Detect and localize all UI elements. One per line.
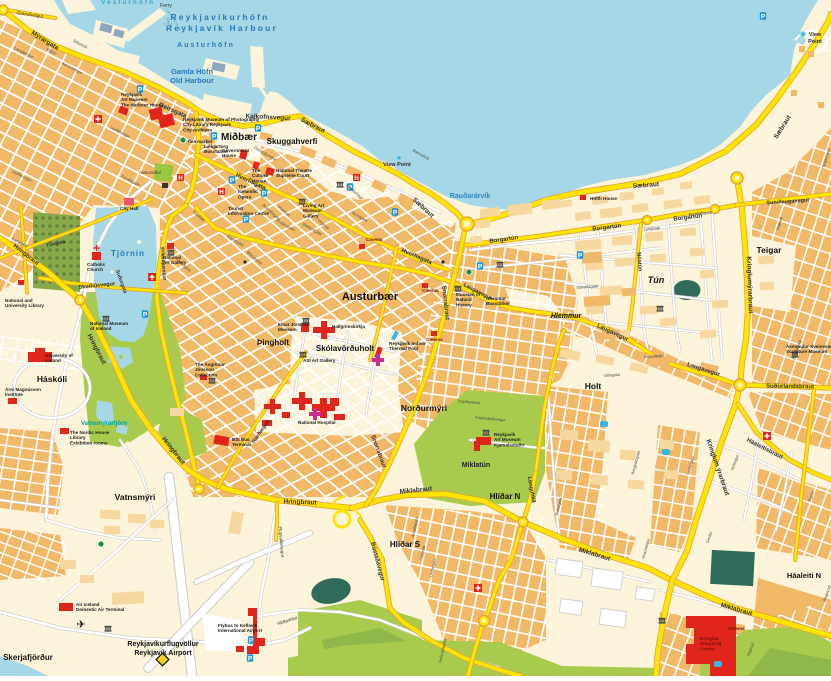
svg-text:Centre: Centre bbox=[700, 646, 715, 651]
svg-text:View Point: View Point bbox=[383, 162, 411, 168]
svg-text:International Airport: International Airport bbox=[218, 628, 262, 633]
svg-text:P: P bbox=[212, 134, 217, 141]
svg-text:Thermal Pool: Thermal Pool bbox=[389, 346, 418, 351]
svg-text:Austurbær: Austurbær bbox=[342, 291, 399, 303]
svg-text:Höfði House: Höfði House bbox=[590, 195, 617, 201]
svg-text:P: P bbox=[249, 638, 254, 645]
svg-text:Cinema: Cinema bbox=[366, 237, 383, 242]
svg-text:Reykjavíkurflugvöllur: Reykjavíkurflugvöllur bbox=[127, 641, 198, 648]
svg-text:H: H bbox=[219, 190, 223, 196]
svg-text:Hlíðar S: Hlíðar S bbox=[390, 540, 421, 549]
svg-text:P: P bbox=[478, 264, 483, 271]
svg-text:Holt: Holt bbox=[585, 381, 602, 391]
svg-text:Tjörnin: Tjörnin bbox=[111, 249, 145, 258]
svg-text:Ásmundur Sveinsson: Ásmundur Sveinsson bbox=[786, 343, 831, 349]
svg-text:Austurvöllur: Austurvöllur bbox=[139, 170, 162, 175]
svg-text:Ferry: Ferry bbox=[160, 3, 172, 9]
svg-text:Vatnsmýri: Vatnsmýri bbox=[115, 492, 156, 502]
svg-text:Hlemmur: Hlemmur bbox=[551, 313, 583, 320]
svg-text:Information Centre: Information Centre bbox=[228, 211, 270, 216]
svg-text:P: P bbox=[244, 217, 249, 224]
svg-text:H: H bbox=[178, 176, 182, 182]
svg-text:Teigar: Teigar bbox=[757, 245, 783, 255]
svg-text:Skuggahverfi: Skuggahverfi bbox=[267, 137, 318, 146]
svg-text:Point: Point bbox=[808, 39, 822, 45]
svg-text:City Hall: City Hall bbox=[120, 206, 138, 211]
svg-text:of Iceland: of Iceland bbox=[90, 326, 112, 331]
svg-text:Domestic Air Terminal: Domestic Air Terminal bbox=[76, 607, 124, 612]
svg-text:Kjarvalsstaðir: Kjarvalsstaðir bbox=[494, 441, 525, 447]
svg-text:National Hospital: National Hospital bbox=[298, 420, 336, 425]
svg-text:Tún: Tún bbox=[648, 275, 665, 285]
svg-text:Suðurlandsbraut: Suðurlandsbraut bbox=[766, 383, 814, 391]
svg-text:Hringbraut: Hringbraut bbox=[283, 498, 317, 506]
svg-text:Rauðarárvík: Rauðarárvík bbox=[450, 192, 491, 200]
svg-text:House: House bbox=[252, 178, 266, 183]
svg-text:P: P bbox=[230, 178, 235, 185]
svg-text:Vesturhöfn: Vesturhöfn bbox=[101, 0, 155, 6]
svg-text:P: P bbox=[393, 210, 398, 217]
svg-text:Church: Church bbox=[87, 267, 103, 272]
svg-text:P: P bbox=[578, 253, 583, 260]
svg-text:University Library: University Library bbox=[5, 303, 45, 308]
svg-text:Hallgrímskirkja: Hallgrímskirkja bbox=[332, 324, 365, 329]
svg-text:Terminal: Terminal bbox=[232, 442, 251, 447]
svg-text:P: P bbox=[761, 14, 766, 21]
svg-text:BSÍ Bus: BSÍ Bus bbox=[232, 435, 250, 442]
svg-text:Cinema: Cinema bbox=[728, 626, 745, 631]
svg-text:Háaleiti N: Háaleiti N bbox=[787, 571, 821, 580]
svg-text:View: View bbox=[809, 32, 822, 38]
svg-text:P: P bbox=[248, 656, 253, 663]
svg-text:Þingholt: Þingholt bbox=[257, 338, 289, 347]
svg-text:Reykjavík Harbour: Reykjavík Harbour bbox=[166, 23, 278, 33]
svg-text:Collection: Collection bbox=[195, 372, 217, 377]
svg-text:The Ásgrímur: The Ásgrímur bbox=[195, 361, 225, 367]
svg-text:P: P bbox=[143, 312, 148, 319]
svg-text:Supreme Court: Supreme Court bbox=[276, 173, 310, 178]
svg-text:Miklatún: Miklatún bbox=[462, 462, 490, 469]
svg-text:ASÍ Art Gallery: ASÍ Art Gallery bbox=[303, 356, 336, 363]
svg-text:Gamla Höfn: Gamla Höfn bbox=[171, 67, 214, 76]
svg-text:Miðbær: Miðbær bbox=[221, 131, 257, 143]
svg-text:Old Harbour: Old Harbour bbox=[170, 76, 214, 85]
svg-text:Hlíðar N: Hlíðar N bbox=[490, 492, 521, 501]
svg-text:Reykjavíkurhöfn: Reykjavíkurhöfn bbox=[170, 12, 269, 22]
svg-text:House: House bbox=[222, 153, 236, 158]
svg-text:Cinema: Cinema bbox=[426, 337, 443, 342]
svg-text:Opera: Opera bbox=[238, 194, 252, 199]
svg-text:Iceland: Iceland bbox=[45, 358, 61, 363]
svg-text:Exhibition rooms: Exhibition rooms bbox=[70, 440, 108, 445]
svg-text:✺: ✺ bbox=[396, 155, 401, 162]
svg-text:History: History bbox=[456, 302, 472, 307]
svg-text:Museum: Museum bbox=[278, 327, 297, 332]
svg-text:Gallery: Gallery bbox=[303, 213, 319, 218]
svg-text:Árni Magnússon: Árni Magnússon bbox=[5, 386, 41, 392]
svg-text:⚓: ⚓ bbox=[163, 17, 173, 27]
svg-text:City Archives: City Archives bbox=[183, 127, 213, 132]
svg-text:Cinema: Cinema bbox=[422, 288, 439, 293]
svg-text:✈: ✈ bbox=[76, 619, 85, 631]
svg-text:Skólavörðuholt: Skólavörðuholt bbox=[316, 344, 375, 353]
svg-text:P: P bbox=[262, 191, 267, 198]
svg-text:Skerjafjörður: Skerjafjörður bbox=[3, 653, 53, 662]
svg-text:The Harbour House: The Harbour House bbox=[121, 102, 164, 107]
svg-text:Háskóli: Háskóli bbox=[37, 374, 67, 384]
svg-text:Austurhöfn: Austurhöfn bbox=[177, 42, 235, 49]
svg-text:Reykjavík Airport: Reykjavík Airport bbox=[134, 650, 192, 657]
svg-text:Busstation: Busstation bbox=[486, 301, 510, 306]
svg-text:H: H bbox=[354, 176, 358, 182]
svg-text:Vatnsmýrartjörn: Vatnsmýrartjörn bbox=[81, 421, 127, 427]
svg-text:✺: ✺ bbox=[800, 30, 807, 39]
svg-text:Norðurmýri: Norðurmýri bbox=[401, 403, 447, 413]
svg-text:Institute: Institute bbox=[5, 392, 23, 397]
